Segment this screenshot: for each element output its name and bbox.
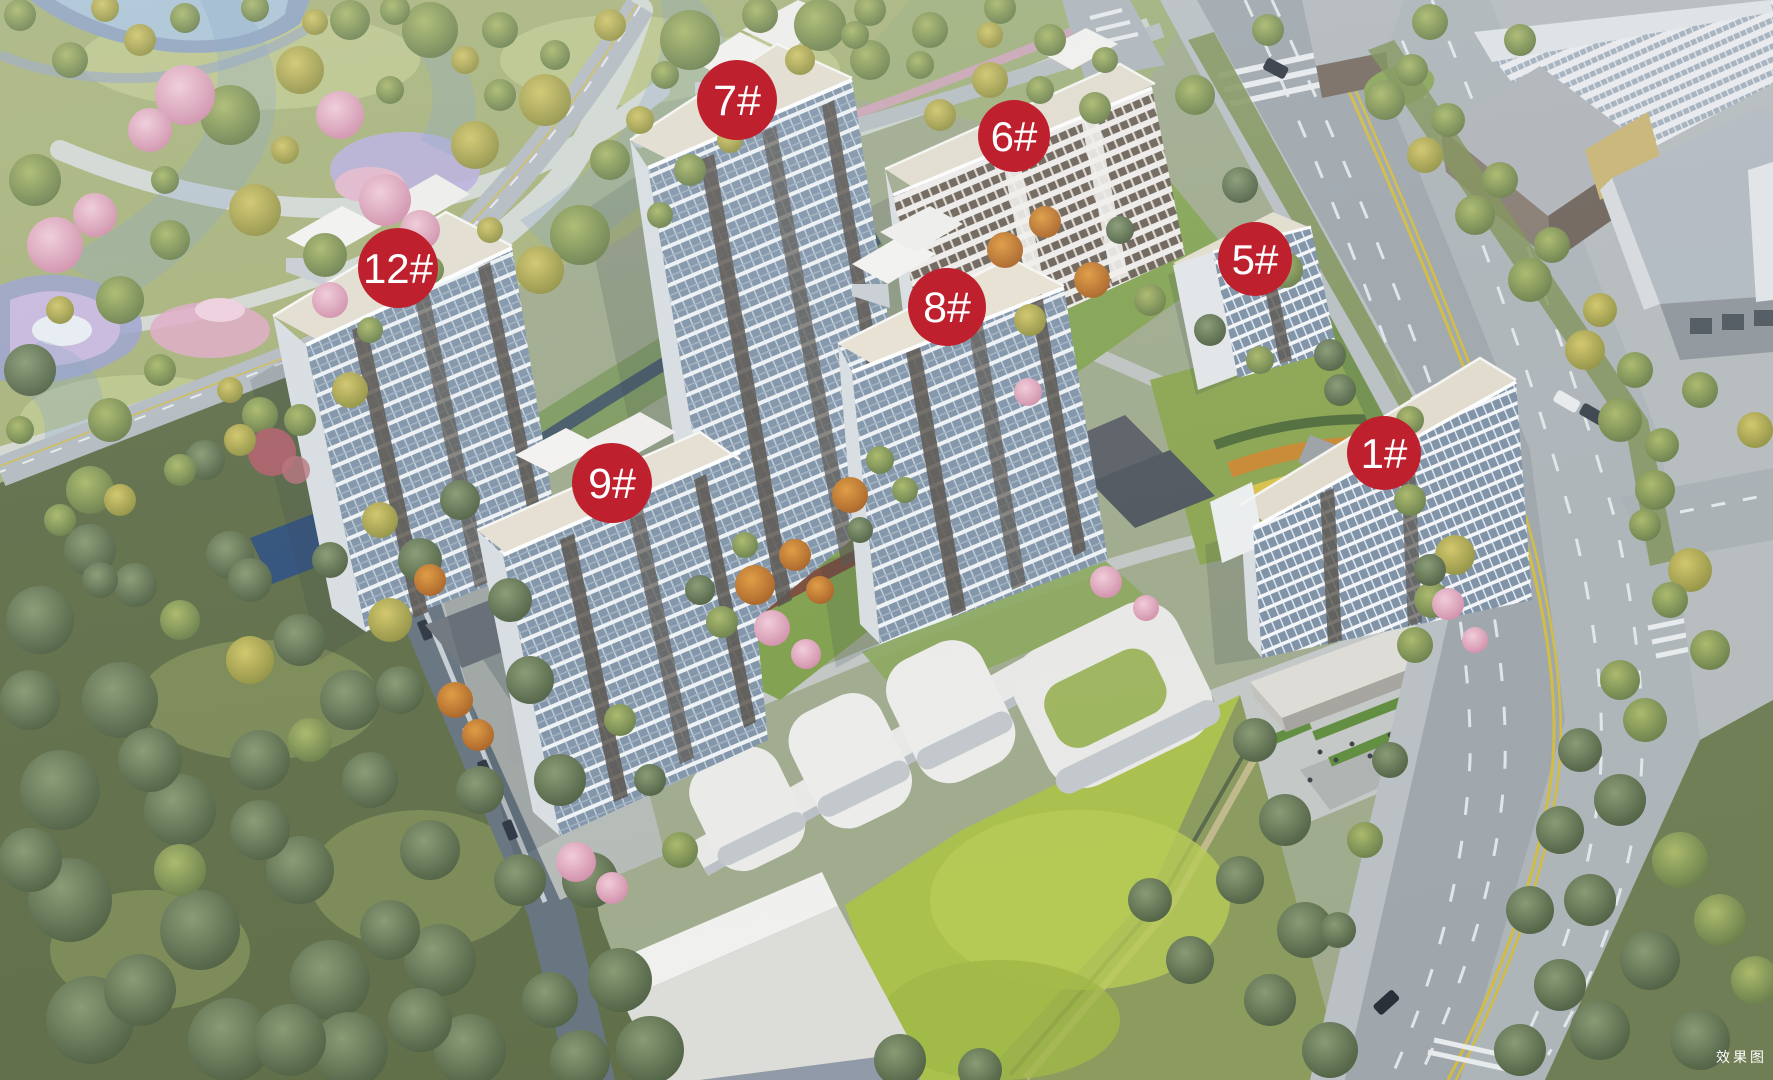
svg-text:6#: 6# [991, 113, 1038, 160]
svg-text:1#: 1# [1361, 430, 1408, 477]
svg-text:效果图: 效果图 [1716, 1049, 1767, 1065]
svg-text:8#: 8# [923, 284, 971, 332]
svg-text:9#: 9# [588, 460, 636, 508]
svg-text:7#: 7# [713, 77, 761, 125]
svg-text:5#: 5# [1232, 236, 1279, 283]
svg-text:12#: 12# [363, 245, 434, 292]
